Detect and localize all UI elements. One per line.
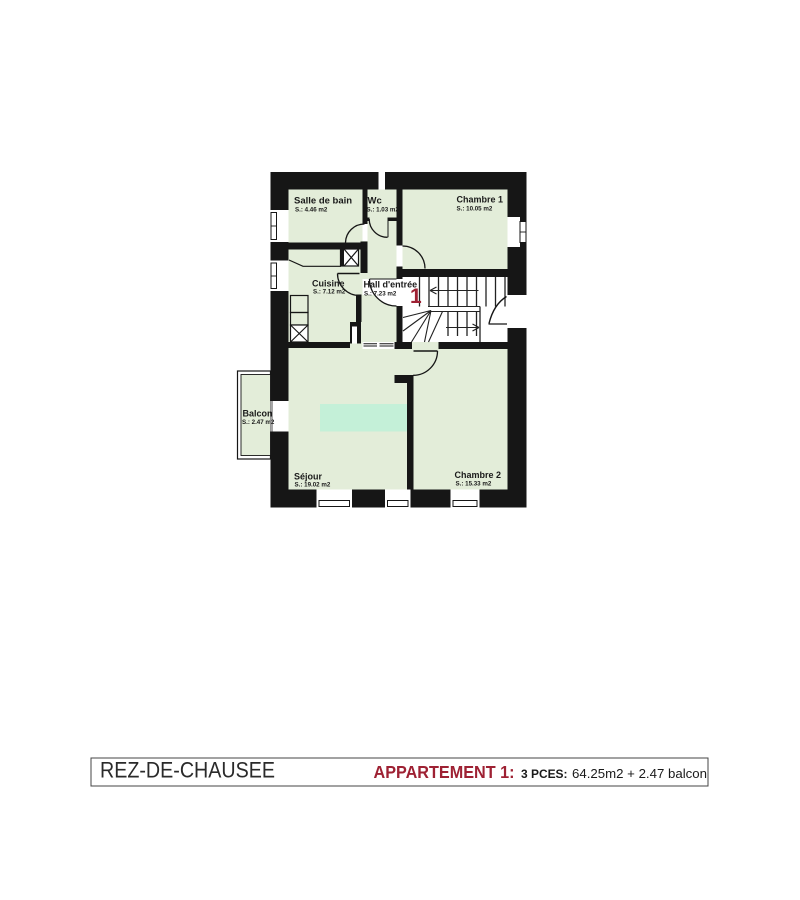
svg-text:1: 1 — [410, 285, 422, 308]
svg-text:S.: 7.23 m2: S.: 7.23 m2 — [364, 291, 397, 298]
svg-text:S.: 1.03 m2: S.: 1.03 m2 — [367, 207, 400, 214]
svg-text:Cuisine: Cuisine — [312, 279, 345, 289]
svg-text:3 PCES:: 3 PCES: — [521, 767, 568, 781]
svg-text:S.: 4.46 m2: S.: 4.46 m2 — [295, 207, 328, 214]
svg-text:REZ-DE-CHAUSEE: REZ-DE-CHAUSEE — [100, 758, 275, 783]
svg-text:Wc: Wc — [368, 196, 382, 207]
svg-text:Chambre 1: Chambre 1 — [457, 195, 504, 205]
svg-text:Salle de bain: Salle de bain — [294, 196, 352, 207]
svg-text:S.: 2.47 m2: S.: 2.47 m2 — [242, 419, 275, 426]
svg-text:S.: 19.02 m2: S.: 19.02 m2 — [295, 482, 331, 489]
svg-text:Chambre 2: Chambre 2 — [455, 470, 502, 480]
svg-text:Séjour: Séjour — [294, 472, 323, 482]
svg-text:Balcon: Balcon — [243, 409, 273, 419]
svg-text:S.: 15.33 m2: S.: 15.33 m2 — [456, 481, 492, 488]
svg-text:64.25m2 + 2.47 balcon: 64.25m2 + 2.47 balcon — [572, 766, 707, 781]
svg-text:S.: 7.12 m2: S.: 7.12 m2 — [313, 289, 346, 296]
svg-text:APPARTEMENT 1:: APPARTEMENT 1: — [374, 762, 515, 782]
svg-text:S.: 10.05 m2: S.: 10.05 m2 — [457, 206, 493, 213]
